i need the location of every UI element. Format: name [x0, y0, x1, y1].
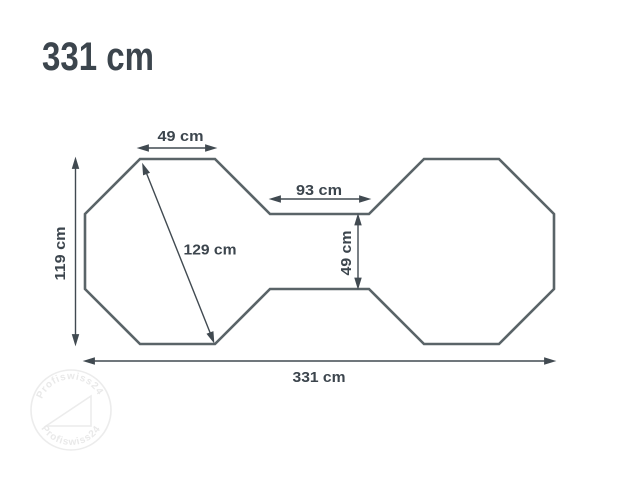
svg-text:129 cm: 129 cm	[184, 242, 237, 259]
svg-text:119 cm: 119 cm	[52, 227, 69, 281]
svg-text:93 cm: 93 cm	[296, 182, 342, 199]
svg-text:49 cm: 49 cm	[338, 231, 355, 276]
svg-text:Profiswiss24: Profiswiss24	[35, 371, 106, 400]
svg-text:331 cm: 331 cm	[293, 369, 346, 386]
svg-text:49 cm: 49 cm	[158, 128, 204, 145]
svg-text:Profiswiss24: Profiswiss24	[39, 424, 104, 449]
